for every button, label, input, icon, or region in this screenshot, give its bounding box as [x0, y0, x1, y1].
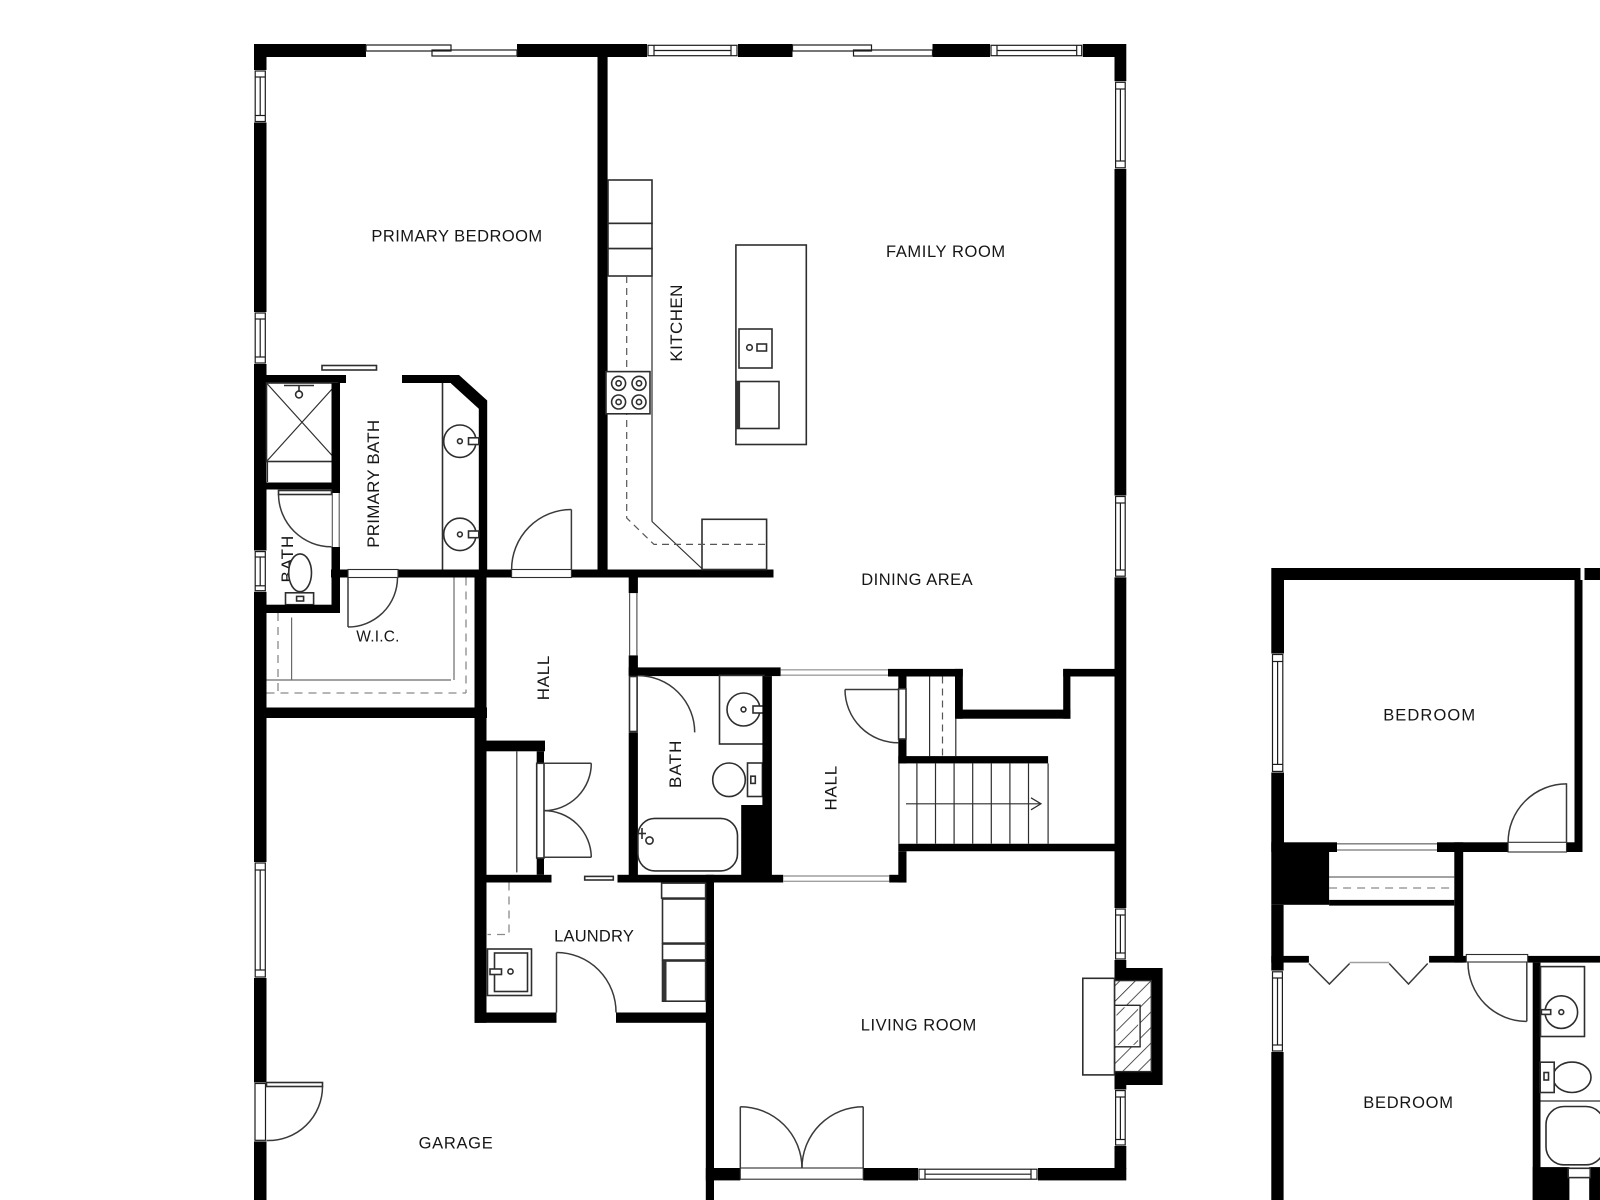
svg-text:BATH: BATH: [666, 739, 685, 787]
svg-text:W.I.C.: W.I.C.: [356, 629, 399, 646]
svg-text:BEDROOM: BEDROOM: [1383, 707, 1476, 725]
svg-text:PRIMARY BEDROOM: PRIMARY BEDROOM: [371, 228, 542, 246]
svg-text:PRIMARY BATH: PRIMARY BATH: [364, 420, 383, 548]
svg-text:LIVING ROOM: LIVING ROOM: [861, 1017, 977, 1035]
svg-text:FAMILY ROOM: FAMILY ROOM: [886, 243, 1006, 261]
svg-text:DINING AREA: DINING AREA: [861, 571, 973, 589]
svg-text:HALL: HALL: [821, 765, 840, 810]
svg-text:GARAGE: GARAGE: [419, 1135, 494, 1153]
svg-text:KITCHEN: KITCHEN: [667, 284, 686, 361]
svg-text:BEDROOM: BEDROOM: [1363, 1094, 1454, 1112]
svg-text:HALL: HALL: [534, 655, 553, 700]
svg-text:LAUNDRY: LAUNDRY: [554, 928, 634, 946]
